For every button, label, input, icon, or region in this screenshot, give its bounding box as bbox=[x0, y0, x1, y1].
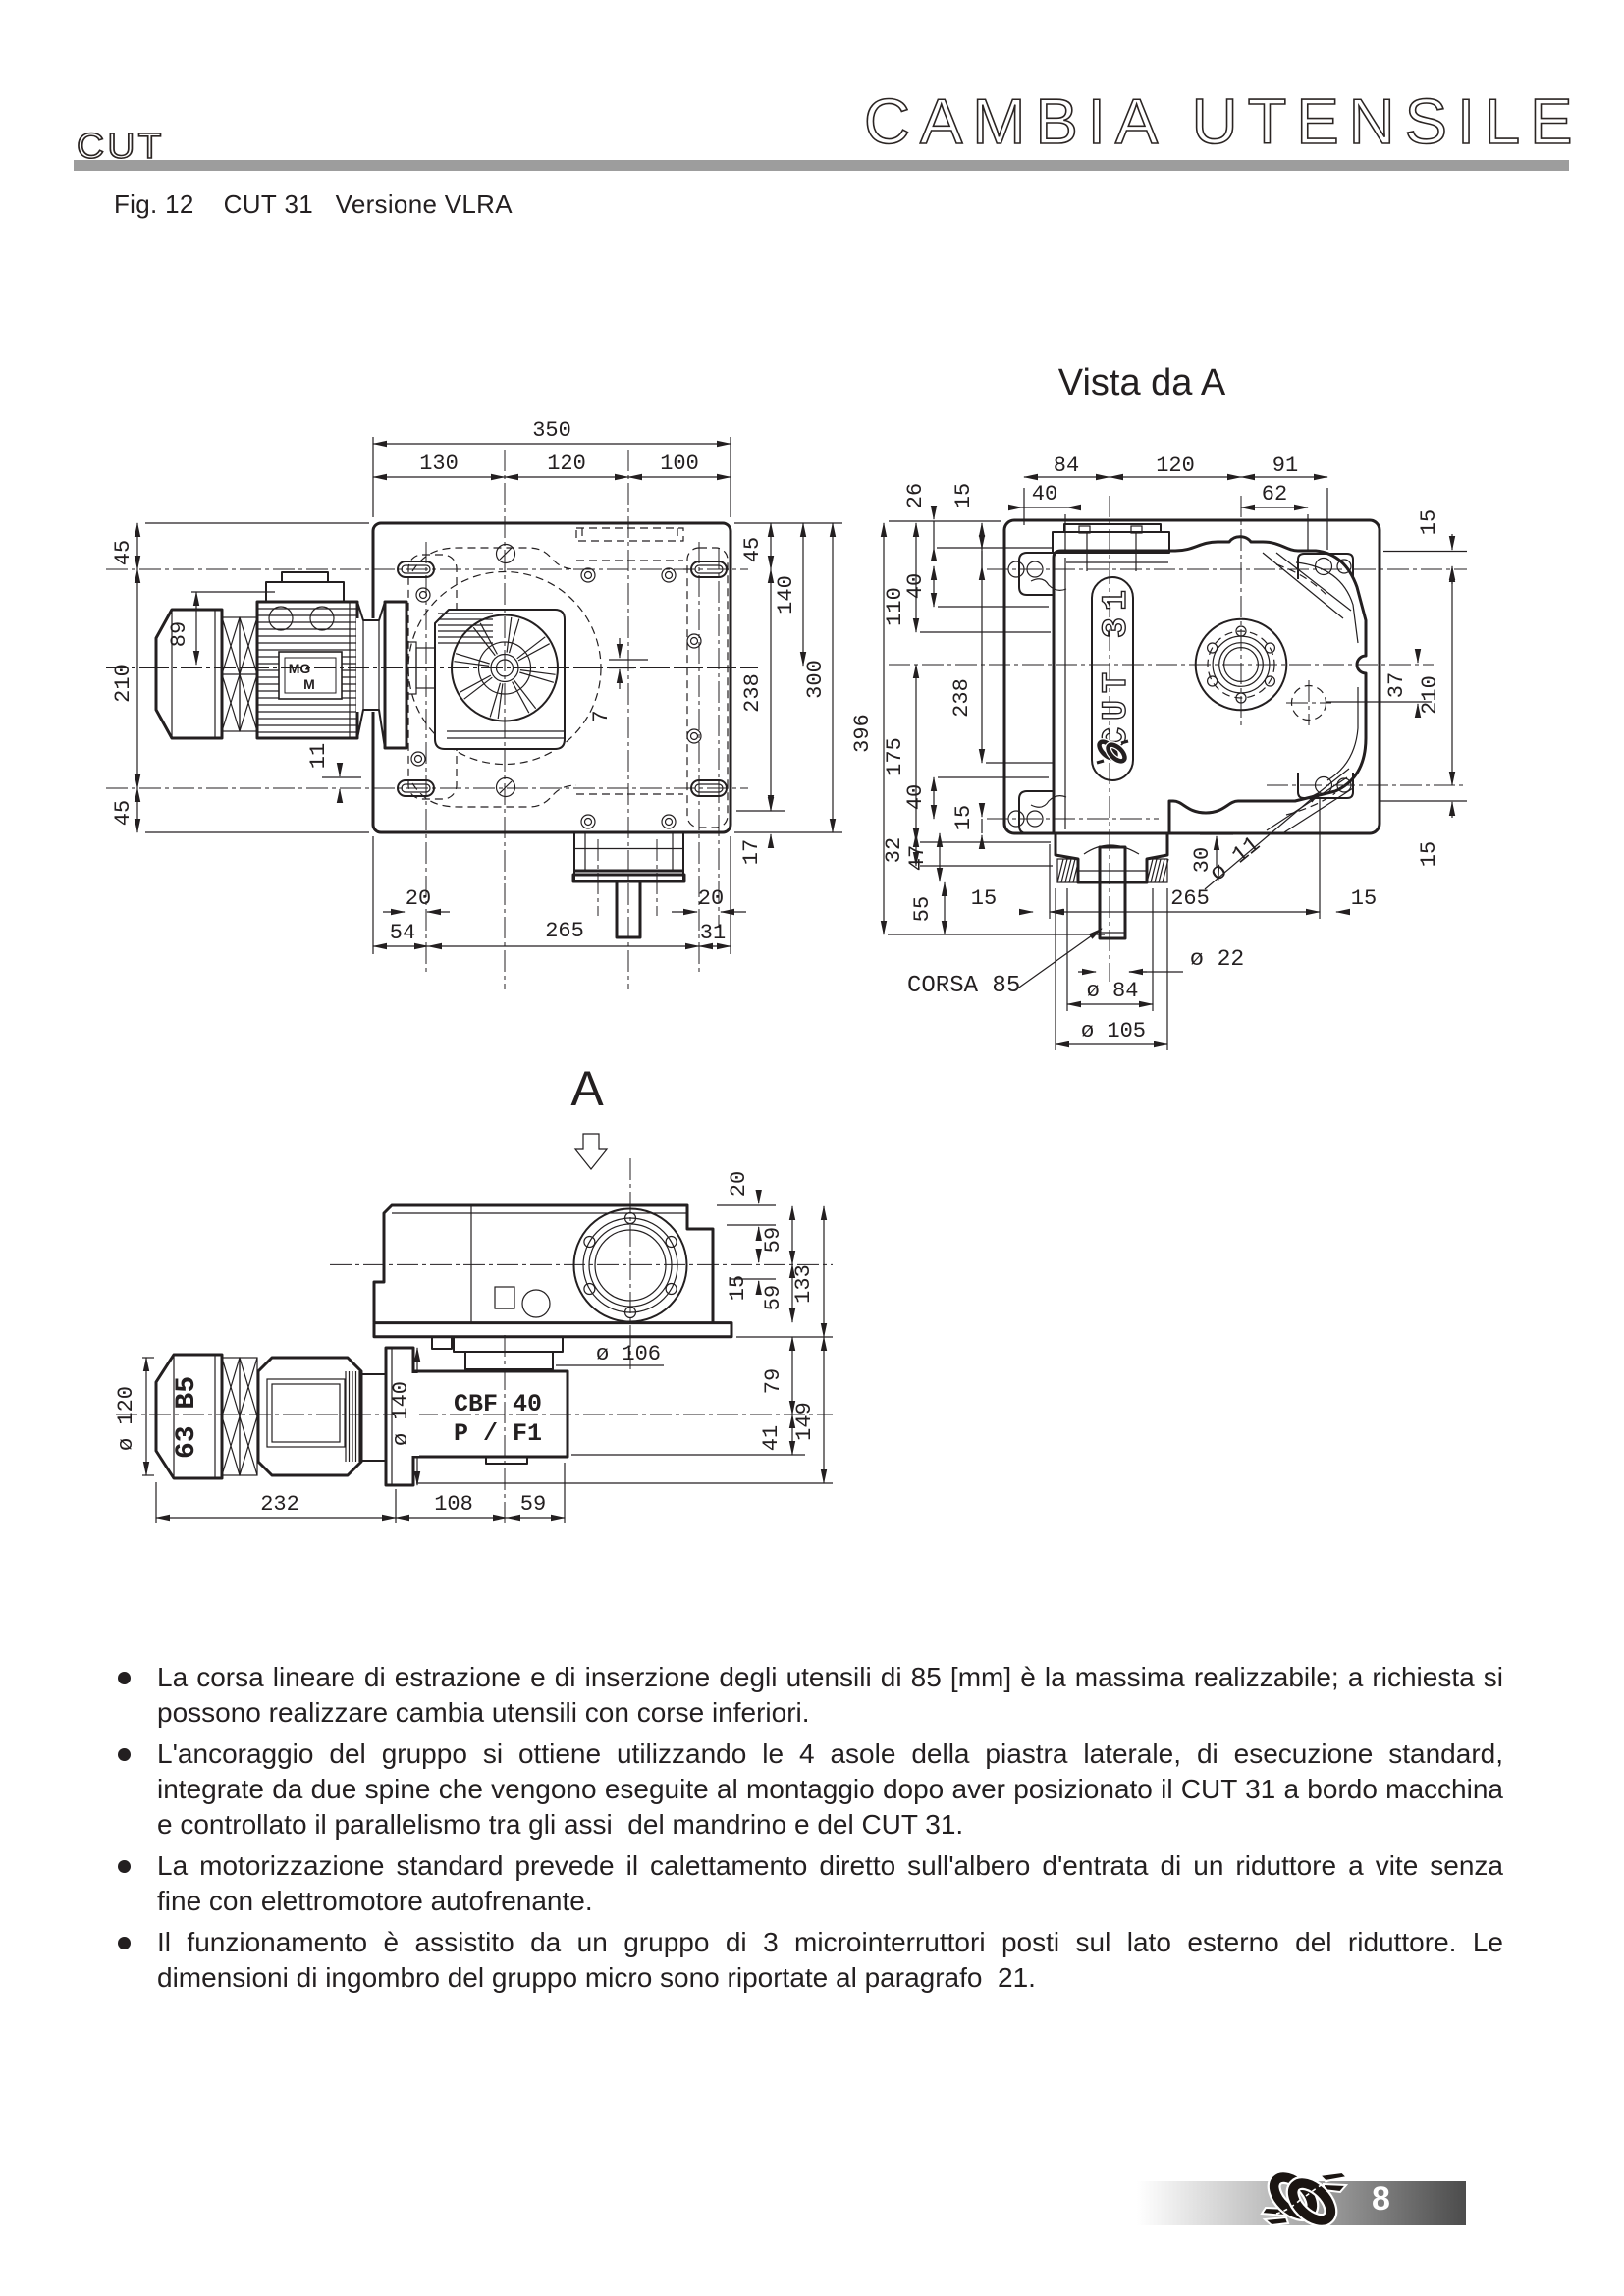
svg-text:396: 396 bbox=[850, 714, 875, 753]
svg-text:17: 17 bbox=[739, 839, 764, 865]
svg-text:31: 31 bbox=[700, 921, 726, 945]
svg-text:59: 59 bbox=[520, 1492, 546, 1517]
svg-text:210: 210 bbox=[1418, 675, 1442, 715]
svg-text:120: 120 bbox=[1156, 454, 1195, 478]
svg-text:15: 15 bbox=[971, 886, 997, 911]
svg-text:300: 300 bbox=[803, 660, 828, 699]
svg-text:CUT 31: CUT 31 bbox=[1097, 583, 1136, 748]
svg-text:79: 79 bbox=[761, 1368, 785, 1394]
svg-text:238: 238 bbox=[949, 678, 974, 718]
svg-text:175: 175 bbox=[883, 737, 907, 776]
svg-text:15: 15 bbox=[951, 805, 976, 830]
svg-text:CBF 40: CBF 40 bbox=[454, 1390, 542, 1418]
svg-text:232: 232 bbox=[260, 1492, 299, 1517]
svg-text:133: 133 bbox=[791, 1264, 816, 1304]
svg-text:15: 15 bbox=[1417, 509, 1441, 535]
svg-text:210: 210 bbox=[111, 664, 135, 703]
svg-text:89: 89 bbox=[167, 621, 191, 647]
svg-text:59: 59 bbox=[761, 1285, 785, 1310]
svg-text:84: 84 bbox=[1054, 454, 1079, 478]
svg-text:M: M bbox=[303, 676, 315, 692]
svg-text:238: 238 bbox=[740, 673, 765, 713]
svg-text:40: 40 bbox=[903, 784, 928, 810]
svg-text:ø 22: ø 22 bbox=[1190, 946, 1244, 972]
svg-text:7: 7 bbox=[589, 710, 614, 722]
svg-text:ø 120: ø 120 bbox=[114, 1386, 138, 1451]
svg-text:15: 15 bbox=[1417, 841, 1441, 867]
svg-text:45: 45 bbox=[111, 800, 135, 826]
svg-text:CORSA 85: CORSA 85 bbox=[907, 973, 1020, 999]
svg-text:120: 120 bbox=[547, 452, 586, 476]
svg-text:265: 265 bbox=[545, 919, 584, 943]
svg-text:ø 140: ø 140 bbox=[389, 1381, 413, 1446]
svg-text:26: 26 bbox=[903, 483, 928, 508]
svg-text:P / F1: P / F1 bbox=[454, 1419, 542, 1448]
svg-text:45: 45 bbox=[111, 540, 135, 565]
svg-text:15: 15 bbox=[951, 483, 976, 508]
svg-text:A: A bbox=[570, 1061, 604, 1116]
svg-text:15: 15 bbox=[726, 1275, 750, 1301]
svg-text:11: 11 bbox=[306, 743, 331, 769]
svg-text:Vista da A: Vista da A bbox=[1058, 362, 1226, 403]
svg-text:130: 130 bbox=[419, 452, 459, 476]
svg-text:108: 108 bbox=[434, 1492, 473, 1517]
svg-text:54: 54 bbox=[390, 921, 415, 945]
svg-text:140: 140 bbox=[774, 575, 798, 614]
svg-text:ø 84: ø 84 bbox=[1087, 979, 1139, 1003]
svg-text:40: 40 bbox=[1032, 482, 1057, 507]
svg-text:ø 106: ø 106 bbox=[596, 1342, 661, 1366]
svg-text:15: 15 bbox=[1351, 886, 1377, 911]
svg-text:ø 105: ø 105 bbox=[1081, 1019, 1146, 1043]
svg-text:20: 20 bbox=[727, 1171, 751, 1197]
svg-text:ø 11: ø 11 bbox=[1206, 831, 1267, 887]
svg-text:91: 91 bbox=[1272, 454, 1298, 478]
svg-text:62: 62 bbox=[1262, 482, 1287, 507]
svg-text:350: 350 bbox=[532, 418, 571, 443]
svg-text:265: 265 bbox=[1170, 886, 1210, 911]
svg-text:41: 41 bbox=[759, 1425, 784, 1451]
svg-text:47: 47 bbox=[905, 845, 930, 871]
svg-text:45: 45 bbox=[740, 537, 765, 562]
svg-text:59: 59 bbox=[761, 1227, 785, 1253]
svg-text:37: 37 bbox=[1384, 672, 1409, 698]
svg-text:20: 20 bbox=[698, 886, 724, 911]
svg-text:55: 55 bbox=[910, 896, 935, 922]
svg-text:100: 100 bbox=[660, 452, 699, 476]
svg-text:149: 149 bbox=[792, 1402, 817, 1441]
svg-text:32: 32 bbox=[882, 837, 906, 863]
svg-text:20: 20 bbox=[406, 886, 431, 911]
svg-text:63 B5: 63 B5 bbox=[172, 1376, 202, 1459]
svg-text:110: 110 bbox=[883, 587, 907, 626]
